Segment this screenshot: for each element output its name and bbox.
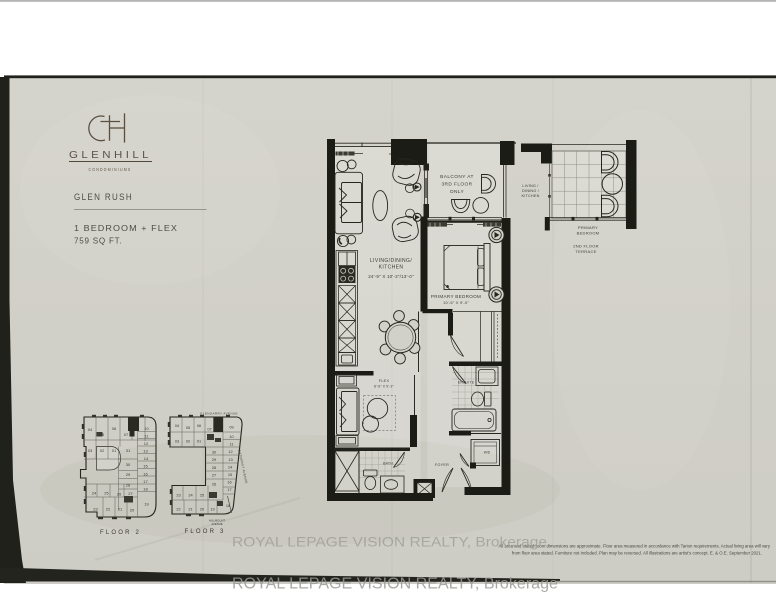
svg-text:15: 15: [228, 472, 232, 477]
svg-text:1 BEDROOM + FLEX: 1 BEDROOM + FLEX: [74, 223, 178, 233]
svg-text:FOYER: FOYER: [435, 463, 449, 467]
svg-text:LIVING/DINING/: LIVING/DINING/: [370, 258, 412, 264]
svg-text:13: 13: [228, 457, 232, 462]
svg-text:ROYAL LEPAGE VISION REALTY, Br: ROYAL LEPAGE VISION REALTY, Brokerage: [232, 576, 558, 593]
svg-text:12: 12: [228, 449, 232, 454]
svg-text:KITCHEN: KITCHEN: [521, 194, 539, 198]
svg-text:TERRACE: TERRACE: [575, 249, 596, 254]
svg-text:GLENGARRY AVENUE: GLENGARRY AVENUE: [200, 412, 238, 416]
svg-text:2ND FLOOR: 2ND FLOOR: [573, 244, 599, 249]
svg-text:16: 16: [143, 472, 148, 477]
svg-text:31: 31: [126, 448, 131, 453]
svg-text:30: 30: [126, 462, 131, 467]
svg-text:24'-9" X 10'-3"/13'-0": 24'-9" X 10'-3"/13'-0": [368, 274, 414, 279]
svg-text:01: 01: [112, 448, 117, 453]
svg-text:19: 19: [144, 502, 149, 507]
svg-text:17: 17: [227, 487, 231, 492]
svg-text:09: 09: [229, 425, 233, 430]
svg-text:GLEN RUSH: GLEN RUSH: [74, 192, 133, 202]
svg-text:17: 17: [143, 479, 148, 484]
svg-text:27: 27: [128, 491, 133, 496]
svg-text:759 SQ FT.: 759 SQ FT.: [74, 236, 123, 246]
svg-text:DINING /: DINING /: [522, 189, 540, 193]
svg-text:3RD FLOOR: 3RD FLOOR: [441, 182, 472, 188]
svg-text:04: 04: [88, 427, 93, 432]
svg-text:ROYAL LEPAGE VISION REALTY, Br: ROYAL LEPAGE VISION REALTY, Brokerage: [232, 534, 547, 550]
svg-text:FLEX: FLEX: [379, 379, 390, 383]
svg-text:PRIMARY: PRIMARY: [578, 225, 598, 230]
svg-text:27: 27: [212, 473, 216, 478]
svg-text:29: 29: [126, 472, 131, 477]
svg-text:22: 22: [106, 507, 111, 512]
svg-text:21: 21: [118, 507, 123, 512]
svg-text:25: 25: [200, 493, 204, 498]
svg-text:22: 22: [176, 507, 180, 512]
svg-text:W/D: W/D: [484, 451, 491, 455]
svg-text:11: 11: [229, 442, 233, 447]
svg-text:07: 07: [124, 432, 129, 437]
svg-text:01: 01: [197, 439, 201, 444]
svg-text:16: 16: [227, 480, 231, 485]
svg-text:13: 13: [143, 449, 148, 454]
svg-text:20: 20: [130, 508, 135, 513]
svg-text:26: 26: [117, 492, 122, 497]
svg-text:26: 26: [212, 482, 216, 487]
svg-text:FLOOR 3: FLOOR 3: [184, 529, 225, 535]
svg-text:06: 06: [112, 426, 117, 431]
svg-text:23: 23: [93, 507, 98, 512]
svg-text:CONDOMINIUMS: CONDOMINIUMS: [89, 167, 132, 172]
svg-text:03: 03: [88, 448, 93, 453]
svg-text:07: 07: [207, 427, 211, 432]
svg-text:8'-6" X 9'-3": 8'-6" X 9'-3": [374, 385, 394, 389]
svg-text:06: 06: [197, 423, 201, 428]
svg-text:21: 21: [188, 507, 192, 512]
svg-text:15: 15: [143, 464, 148, 469]
svg-text:AVENUE: AVENUE: [211, 522, 222, 526]
svg-text:05: 05: [100, 432, 105, 437]
svg-text:PRIMARY BEDROOM: PRIMARY BEDROOM: [431, 294, 481, 299]
svg-text:BATH: BATH: [383, 462, 393, 466]
svg-text:18: 18: [143, 487, 148, 492]
svg-text:10'-5" X 9'-0": 10'-5" X 9'-0": [443, 300, 469, 305]
svg-text:28: 28: [212, 465, 216, 470]
svg-text:02: 02: [100, 448, 105, 453]
svg-text:LIVING /: LIVING /: [522, 184, 539, 188]
svg-text:19: 19: [210, 507, 214, 512]
svg-text:02: 02: [186, 439, 190, 444]
svg-text:KITCHEN: KITCHEN: [379, 265, 404, 271]
svg-text:GLENHILL: GLENHILL: [69, 150, 152, 161]
svg-text:ONLY: ONLY: [450, 189, 465, 195]
svg-text:14: 14: [144, 456, 149, 461]
svg-text:12: 12: [144, 441, 149, 446]
svg-text:FLOOR 2: FLOOR 2: [100, 530, 141, 536]
svg-text:ENSUITE: ENSUITE: [458, 381, 475, 385]
svg-text:28: 28: [126, 483, 131, 488]
svg-text:05: 05: [186, 425, 190, 430]
svg-text:03: 03: [175, 439, 179, 444]
svg-text:10: 10: [144, 426, 149, 431]
svg-text:from floor area stated. Furnit: from floor area stated. Furniture not in…: [512, 551, 762, 556]
svg-text:25: 25: [104, 491, 109, 496]
svg-text:BALCONY AT: BALCONY AT: [440, 174, 474, 180]
svg-text:29: 29: [212, 457, 216, 462]
svg-text:BEDROOM: BEDROOM: [577, 231, 600, 236]
svg-text:23: 23: [176, 493, 180, 498]
svg-text:24: 24: [92, 491, 97, 496]
